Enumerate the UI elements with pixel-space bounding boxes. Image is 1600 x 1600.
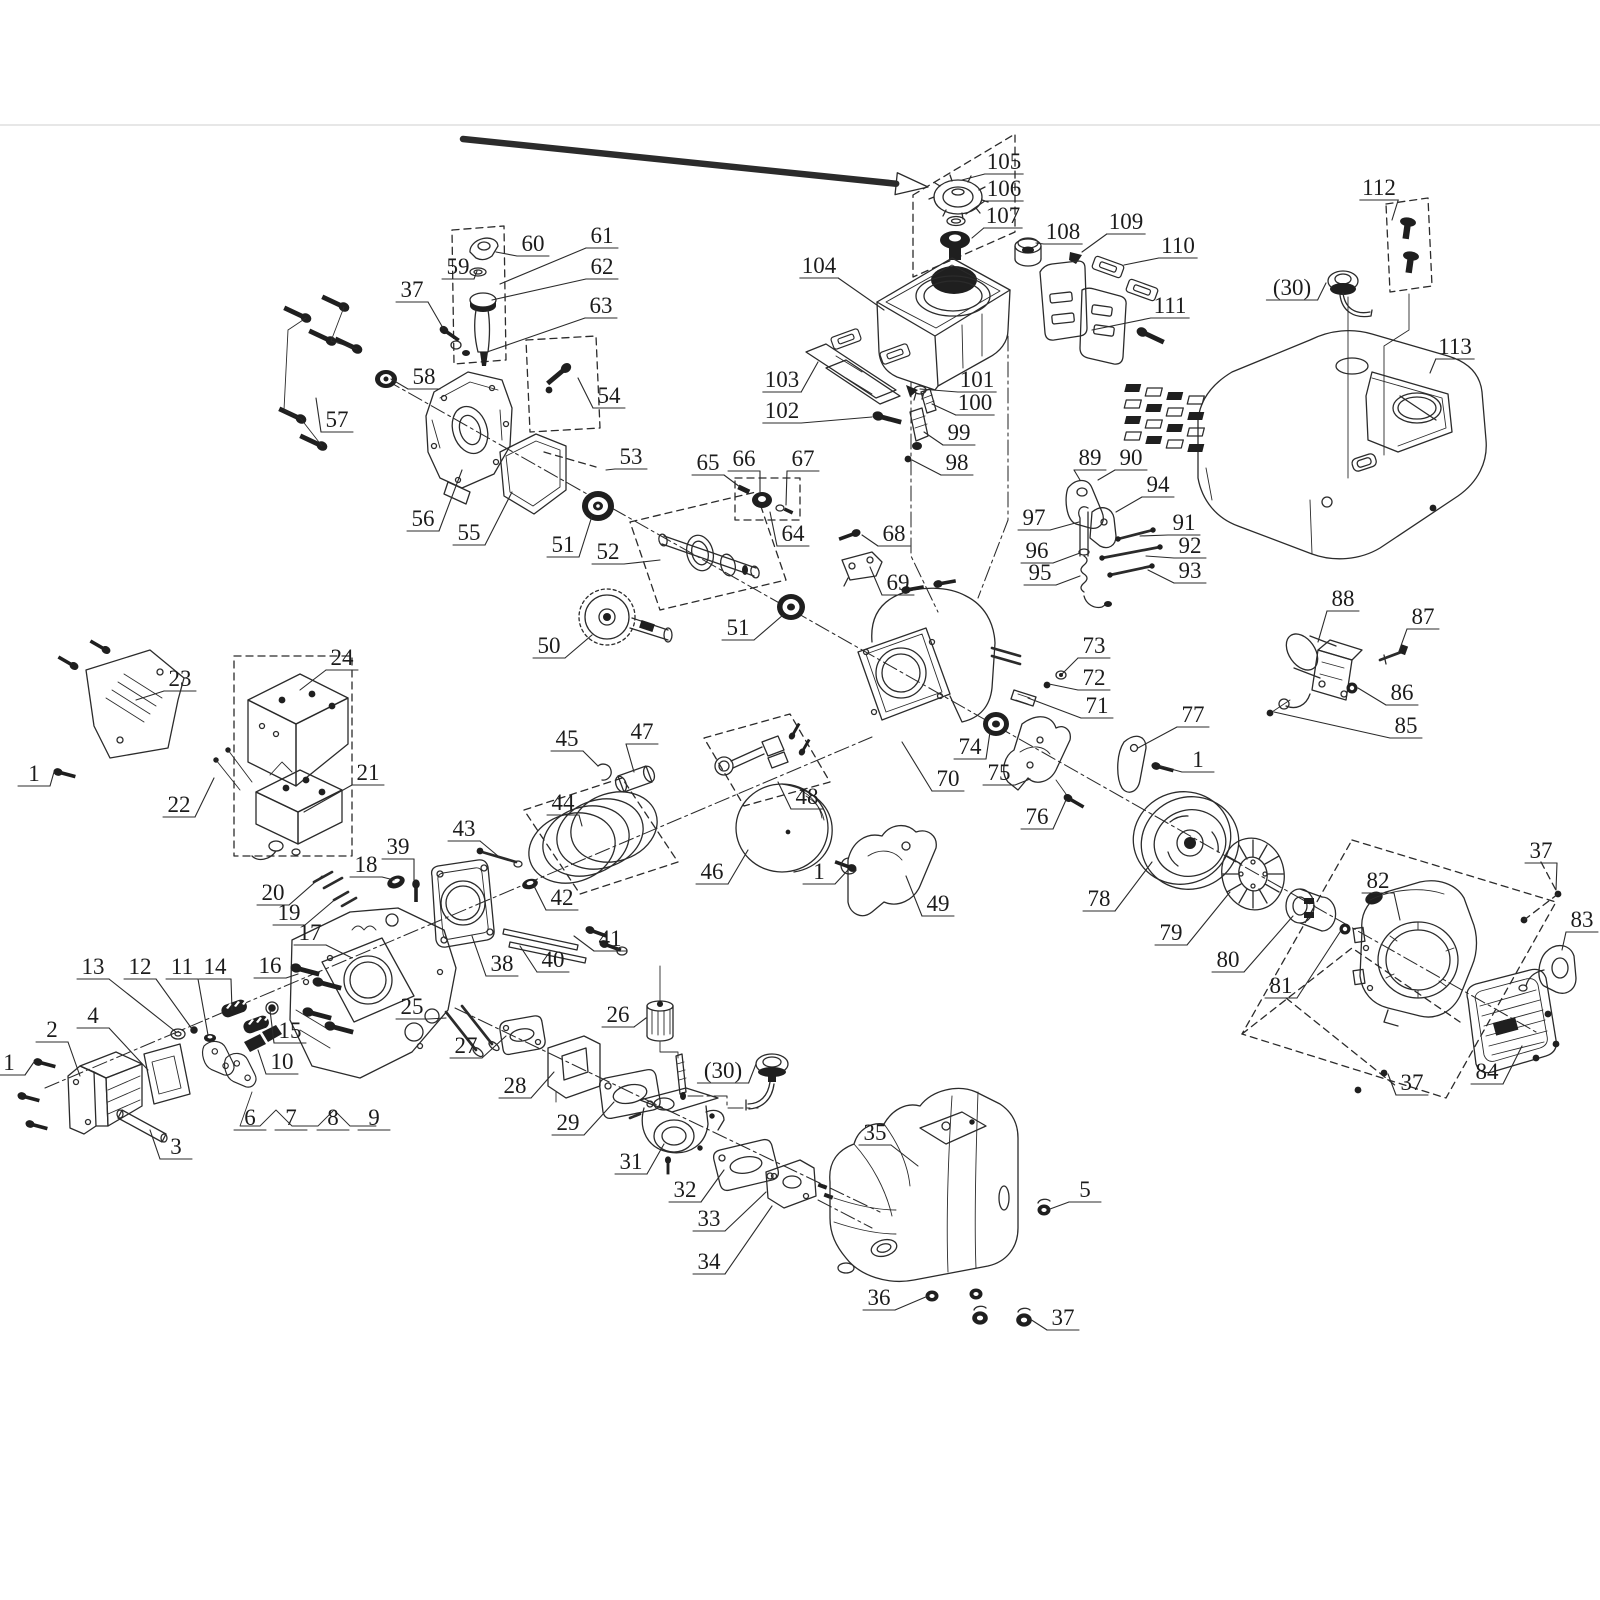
svg-text:82: 82 (1367, 868, 1390, 893)
part-callout-42: 42 (534, 885, 578, 910)
part-callout-36: 36 (863, 1285, 928, 1310)
part-callout-50: 50 (533, 633, 592, 658)
svg-text:6: 6 (244, 1105, 256, 1130)
svg-text:50: 50 (538, 633, 561, 658)
svg-text:80: 80 (1217, 947, 1240, 972)
fuel-tank-assembly (806, 175, 1010, 462)
svg-text:94: 94 (1147, 472, 1171, 497)
part-callout-51: 51 (722, 615, 783, 640)
svg-text:101: 101 (960, 367, 995, 392)
svg-text:47: 47 (631, 719, 654, 744)
part-callout-79: 79 (1155, 892, 1230, 945)
svg-text:36: 36 (868, 1285, 891, 1310)
part-callout-53: 53 (606, 444, 647, 470)
svg-text:10: 10 (271, 1049, 294, 1074)
part-callout-39: 39 (382, 834, 414, 880)
svg-text:32: 32 (674, 1177, 697, 1202)
svg-text:(30): (30) (1273, 275, 1311, 300)
svg-text:95: 95 (1029, 560, 1052, 585)
svg-text:44: 44 (552, 790, 576, 815)
annotation-arrow (463, 139, 928, 195)
part-callout-113: 113 (1430, 334, 1474, 373)
svg-text:65: 65 (697, 450, 720, 475)
svg-text:71: 71 (1086, 693, 1109, 718)
svg-text:91: 91 (1173, 510, 1196, 535)
svg-text:4: 4 (87, 1003, 99, 1028)
svg-text:21: 21 (357, 760, 380, 785)
part-callout-21: 21 (304, 760, 384, 812)
svg-text:29: 29 (557, 1110, 580, 1135)
part-callout-4: 4 (77, 1003, 148, 1070)
svg-text:3: 3 (170, 1134, 182, 1159)
svg-text:68: 68 (883, 521, 906, 546)
shroud-and-covers (53, 638, 348, 860)
svg-text:90: 90 (1120, 445, 1143, 470)
part-callout-80: 80 (1212, 916, 1293, 972)
svg-text:81: 81 (1270, 973, 1293, 998)
svg-text:56: 56 (412, 506, 435, 531)
part-callout-47: 47 (626, 719, 658, 772)
svg-text:108: 108 (1046, 219, 1081, 244)
part-callout-86: 86 (1358, 680, 1418, 705)
svg-text:45: 45 (556, 726, 579, 751)
manifold-group (17, 1041, 376, 1142)
svg-text:69: 69 (887, 570, 910, 595)
svg-text:51: 51 (727, 615, 750, 640)
svg-text:31: 31 (620, 1149, 643, 1174)
svg-text:79: 79 (1160, 920, 1183, 945)
svg-text:74: 74 (959, 734, 983, 759)
part-callout-66: 66 (728, 446, 760, 492)
svg-text:26: 26 (607, 1002, 630, 1027)
part-callout-5: 5 (1050, 1177, 1101, 1209)
svg-text:7: 7 (285, 1105, 297, 1130)
part-callout-10: 10 (258, 1049, 298, 1074)
svg-text:48: 48 (796, 784, 819, 809)
part-callout-45: 45 (551, 726, 598, 766)
tank-hardware (1015, 238, 1166, 364)
svg-text:100: 100 (958, 390, 993, 415)
center-axes (45, 336, 1536, 1228)
part-callout-85: 85 (1274, 712, 1422, 738)
svg-text:15: 15 (279, 1018, 302, 1043)
part-callout-92: 92 (1146, 533, 1206, 558)
svg-text:42: 42 (551, 885, 574, 910)
svg-text:19: 19 (278, 900, 301, 925)
svg-text:104: 104 (802, 253, 837, 278)
part-callout-23: 23 (136, 666, 196, 700)
callout-layer: 1051061071081091101111041031021011009998… (0, 149, 1598, 1330)
svg-text:88: 88 (1332, 586, 1355, 611)
svg-text:113: 113 (1438, 334, 1472, 359)
svg-text:37: 37 (1052, 1305, 1075, 1330)
part-callout-102: 102 (763, 398, 872, 423)
svg-text:85: 85 (1395, 713, 1418, 738)
svg-text:11: 11 (171, 954, 193, 979)
svg-text:102: 102 (765, 398, 800, 423)
part-callout-32: 32 (669, 1170, 724, 1202)
part-callout-78: 78 (1083, 862, 1152, 911)
svg-text:39: 39 (387, 834, 410, 859)
svg-text:62: 62 (591, 254, 614, 279)
svg-text:22: 22 (168, 792, 191, 817)
ignition-coil (1267, 628, 1409, 716)
intake-muffler-group (500, 966, 1051, 1327)
svg-text:77: 77 (1182, 702, 1205, 727)
part-callout-68: 68 (862, 521, 910, 546)
part-callout-26: 26 (602, 1002, 646, 1027)
svg-text:98: 98 (946, 450, 969, 475)
piston-group (477, 722, 856, 963)
part-callout-1: 1 (18, 761, 54, 786)
svg-text:18: 18 (355, 852, 378, 877)
part-callout-103: 103 (763, 362, 818, 392)
part-callout-100: 100 (932, 390, 994, 415)
part-callout-43: 43 (448, 816, 498, 856)
svg-text:78: 78 (1088, 886, 1111, 911)
svg-text:109: 109 (1109, 209, 1144, 234)
part-callout-64: 64 (770, 512, 809, 546)
part-callout-67: 67 (786, 446, 819, 505)
part-callout-1: 1 (0, 1050, 34, 1075)
part-callout-35: 35 (859, 1120, 918, 1166)
svg-text:92: 92 (1179, 533, 1202, 558)
svg-text:8: 8 (327, 1105, 339, 1130)
svg-text:24: 24 (331, 645, 355, 670)
svg-text:54: 54 (598, 383, 622, 408)
part-callout-6: 6 (234, 1105, 266, 1130)
svg-text:70: 70 (937, 766, 960, 791)
part-callout-46: 46 (696, 850, 748, 884)
svg-text:5: 5 (1079, 1177, 1091, 1202)
part-callout-52: 52 (592, 539, 660, 564)
part-callout-56: 56 (407, 470, 462, 531)
part-callout-95: 95 (1024, 560, 1080, 585)
svg-text:93: 93 (1179, 558, 1202, 583)
svg-text:87: 87 (1412, 604, 1435, 629)
svg-text:66: 66 (733, 446, 756, 471)
crankcase-side (277, 238, 614, 521)
svg-text:37: 37 (401, 277, 424, 302)
part-callout-40: 40 (520, 946, 569, 972)
part-callout-37: 37 (1030, 1305, 1079, 1330)
svg-text:52: 52 (597, 539, 620, 564)
svg-text:89: 89 (1079, 445, 1102, 470)
part-callout-70: 70 (902, 742, 964, 791)
svg-text:37: 37 (1530, 838, 1553, 863)
part-callout-30: (30) (1266, 275, 1326, 300)
svg-text:111: 111 (1154, 293, 1187, 318)
svg-text:105: 105 (987, 149, 1022, 174)
svg-text:33: 33 (698, 1206, 721, 1231)
svg-text:64: 64 (782, 521, 806, 546)
flywheel-group (1121, 779, 1576, 1093)
part-callout-112: 112 (1360, 175, 1398, 220)
part-callout-63: 63 (487, 293, 617, 352)
svg-text:25: 25 (401, 994, 424, 1019)
part-callout-54: 54 (578, 378, 625, 408)
svg-text:84: 84 (1476, 1059, 1500, 1084)
part-callout-37: 37 (396, 277, 443, 328)
svg-text:38: 38 (491, 951, 514, 976)
svg-text:23: 23 (169, 666, 192, 691)
part-callout-29: 29 (552, 1102, 614, 1135)
part-callout-74: 74 (954, 732, 990, 759)
svg-text:97: 97 (1023, 505, 1046, 530)
svg-text:14: 14 (204, 954, 228, 979)
svg-text:58: 58 (413, 364, 436, 389)
svg-text:61: 61 (591, 223, 614, 248)
part-callout-93: 93 (1148, 558, 1206, 583)
part-callout-111: 111 (1092, 293, 1189, 330)
svg-text:106: 106 (987, 176, 1022, 201)
part-callout-41: 41 (574, 926, 626, 951)
svg-text:63: 63 (590, 293, 613, 318)
part-callout-8: 8 (317, 1105, 349, 1130)
svg-text:9: 9 (368, 1105, 380, 1130)
svg-text:1: 1 (813, 859, 825, 884)
svg-text:1: 1 (28, 761, 40, 786)
part-callout-72: 72 (1049, 665, 1110, 690)
part-callout-22: 22 (163, 778, 214, 817)
svg-text:40: 40 (542, 947, 565, 972)
part-callout-57: 57 (316, 398, 353, 432)
part-callout-104: 104 (800, 253, 884, 310)
svg-text:59: 59 (447, 254, 470, 279)
part-callout-90: 90 (1098, 445, 1147, 480)
svg-text:13: 13 (82, 954, 105, 979)
part-callout-71: 71 (1028, 693, 1113, 718)
part-callout-48: 48 (778, 782, 823, 809)
part-callout-110: 110 (1124, 233, 1197, 265)
svg-text:2: 2 (46, 1017, 58, 1042)
svg-text:53: 53 (620, 444, 643, 469)
part-callout-81: 81 (1265, 932, 1340, 998)
svg-text:86: 86 (1391, 680, 1414, 705)
svg-text:16: 16 (259, 953, 282, 978)
svg-text:12: 12 (129, 954, 152, 979)
svg-text:1: 1 (1192, 747, 1204, 772)
svg-text:28: 28 (504, 1073, 527, 1098)
svg-text:57: 57 (326, 407, 349, 432)
svg-text:72: 72 (1083, 665, 1106, 690)
part-callout-99: 99 (924, 420, 975, 445)
svg-text:60: 60 (522, 231, 545, 256)
part-callout-2: 2 (36, 1017, 80, 1076)
svg-text:83: 83 (1571, 907, 1594, 932)
part-callout-83: 83 (1562, 907, 1598, 950)
part-callout-37: 37 (1388, 1070, 1428, 1095)
part-callout-58: 58 (391, 364, 440, 389)
part-callout-1: 1 (1160, 747, 1214, 772)
svg-text:67: 67 (792, 446, 815, 471)
svg-text:75: 75 (988, 760, 1011, 785)
cover-and-plugs (1124, 216, 1486, 558)
svg-text:46: 46 (701, 859, 724, 884)
part-callout-88: 88 (1318, 586, 1359, 642)
svg-text:34: 34 (698, 1249, 722, 1274)
part-callout-76: 76 (1021, 800, 1066, 829)
svg-text:35: 35 (864, 1120, 887, 1145)
part-callout-75: 75 (983, 760, 1030, 785)
part-callout-109: 109 (1082, 209, 1145, 252)
svg-text:37: 37 (1401, 1070, 1424, 1095)
part-callout-3: 3 (150, 1130, 192, 1159)
svg-text:43: 43 (453, 816, 476, 841)
svg-text:49: 49 (927, 891, 950, 916)
part-callout-51: 51 (547, 516, 592, 557)
svg-text:103: 103 (765, 367, 800, 392)
part-callout-89: 89 (1074, 445, 1106, 480)
part-callout-98: 98 (912, 450, 973, 475)
svg-text:73: 73 (1083, 633, 1106, 658)
svg-text:17: 17 (299, 920, 322, 945)
svg-text:41: 41 (599, 926, 622, 951)
engine-block (834, 577, 1175, 916)
svg-text:55: 55 (458, 520, 481, 545)
part-callout-77: 77 (1138, 702, 1209, 748)
parts-diagram-page: 1051061071081091101111041031021011009998… (0, 0, 1600, 1600)
svg-text:76: 76 (1026, 804, 1049, 829)
svg-text:(30): (30) (704, 1058, 742, 1083)
svg-text:27: 27 (455, 1033, 478, 1058)
part-callout-94: 94 (1116, 472, 1174, 512)
svg-text:110: 110 (1161, 233, 1195, 258)
svg-text:112: 112 (1362, 175, 1396, 200)
part-callout-28: 28 (499, 1072, 554, 1098)
part-callout-69: 69 (870, 567, 914, 595)
engine-exploded-diagram: 1051061071081091101111041031021011009998… (0, 0, 1600, 1600)
part-callout-55: 55 (453, 492, 512, 545)
svg-text:99: 99 (948, 420, 971, 445)
part-callout-24: 24 (300, 645, 358, 690)
svg-text:51: 51 (552, 532, 575, 557)
part-callout-37: 37 (1525, 838, 1557, 890)
part-callout-108: 108 (1036, 219, 1082, 244)
part-callout-31: 31 (615, 1144, 664, 1174)
part-callout-30: (30) (697, 1058, 756, 1083)
part-callout-14: 14 (199, 954, 232, 1010)
svg-text:1: 1 (3, 1050, 15, 1075)
valvetrain-upper (1066, 481, 1163, 608)
svg-text:107: 107 (986, 203, 1021, 228)
